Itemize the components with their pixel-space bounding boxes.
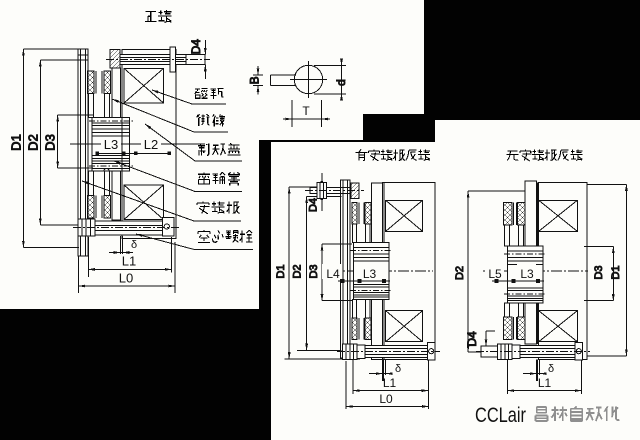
svg-text:δ: δ bbox=[131, 239, 137, 251]
svg-text:L1: L1 bbox=[383, 376, 397, 390]
svg-text:D3: D3 bbox=[308, 264, 320, 278]
svg-text:T: T bbox=[302, 104, 310, 118]
svg-text:L1: L1 bbox=[538, 376, 552, 390]
svg-text:δ: δ bbox=[548, 363, 554, 375]
svg-text:D2: D2 bbox=[454, 266, 466, 280]
svg-text:L3: L3 bbox=[363, 267, 377, 281]
svg-text:CCLair: CCLair bbox=[475, 404, 526, 427]
svg-text:d: d bbox=[334, 79, 348, 86]
svg-text:D4: D4 bbox=[308, 198, 320, 212]
svg-text:L0: L0 bbox=[119, 271, 133, 286]
svg-text:δ: δ bbox=[395, 363, 401, 375]
svg-text:L0: L0 bbox=[379, 392, 393, 406]
svg-text:D1: D1 bbox=[275, 264, 287, 278]
svg-text:L4: L4 bbox=[326, 267, 340, 281]
svg-text:D4: D4 bbox=[189, 39, 203, 55]
svg-text:D2: D2 bbox=[25, 134, 40, 151]
svg-text:D3: D3 bbox=[593, 265, 605, 279]
svg-text:D1: D1 bbox=[610, 265, 622, 279]
svg-text:L5: L5 bbox=[488, 267, 502, 281]
svg-text:B: B bbox=[248, 76, 262, 84]
svg-text:D2: D2 bbox=[292, 264, 304, 278]
svg-text:L3: L3 bbox=[520, 267, 534, 281]
svg-text:L3: L3 bbox=[104, 137, 118, 152]
svg-text:L2: L2 bbox=[144, 137, 158, 152]
svg-text:L1: L1 bbox=[122, 254, 136, 269]
svg-text:D3: D3 bbox=[42, 134, 57, 151]
svg-text:D1: D1 bbox=[8, 134, 23, 151]
svg-text:D4: D4 bbox=[465, 331, 479, 347]
